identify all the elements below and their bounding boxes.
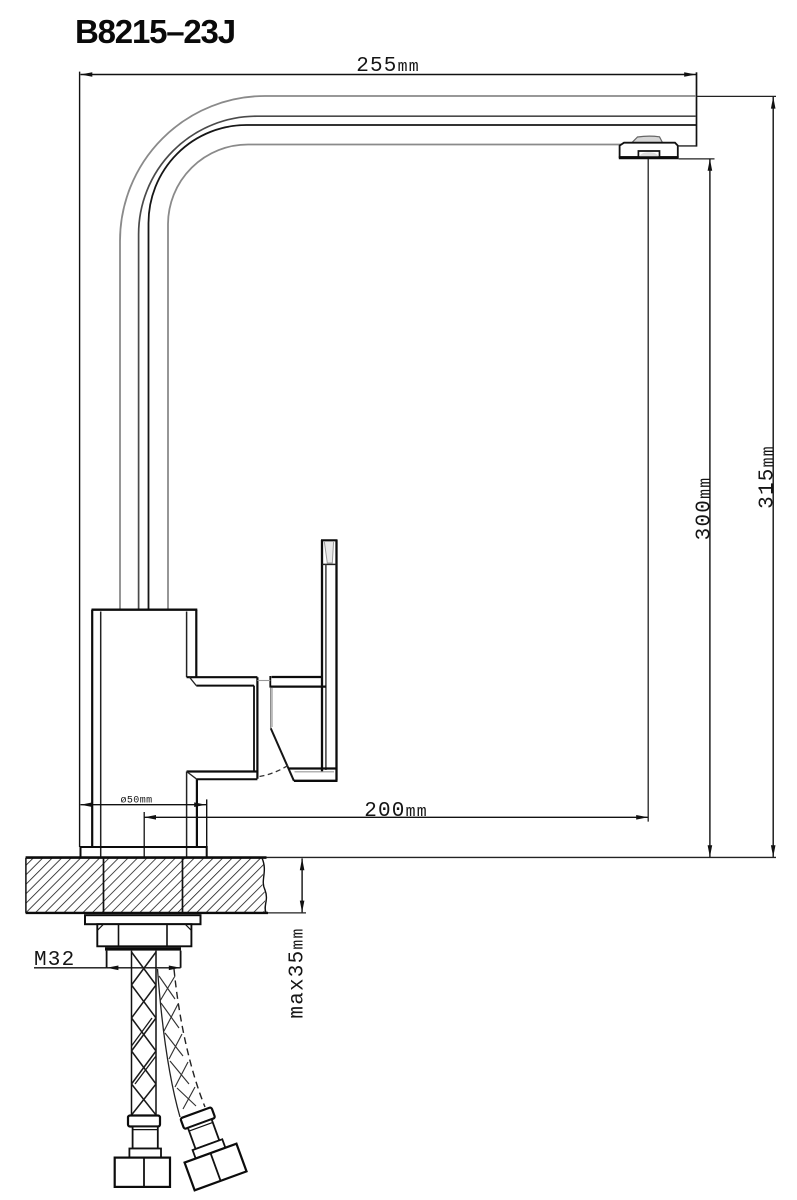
svg-text:200mm: 200mm xyxy=(364,800,428,823)
svg-text:B8215–23J: B8215–23J xyxy=(75,13,235,50)
svg-text:300mm: 300mm xyxy=(694,477,717,541)
svg-text:315mm: 315mm xyxy=(757,445,780,509)
svg-text:M32: M32 xyxy=(34,949,75,972)
svg-text:max35mm: max35mm xyxy=(287,927,310,1018)
